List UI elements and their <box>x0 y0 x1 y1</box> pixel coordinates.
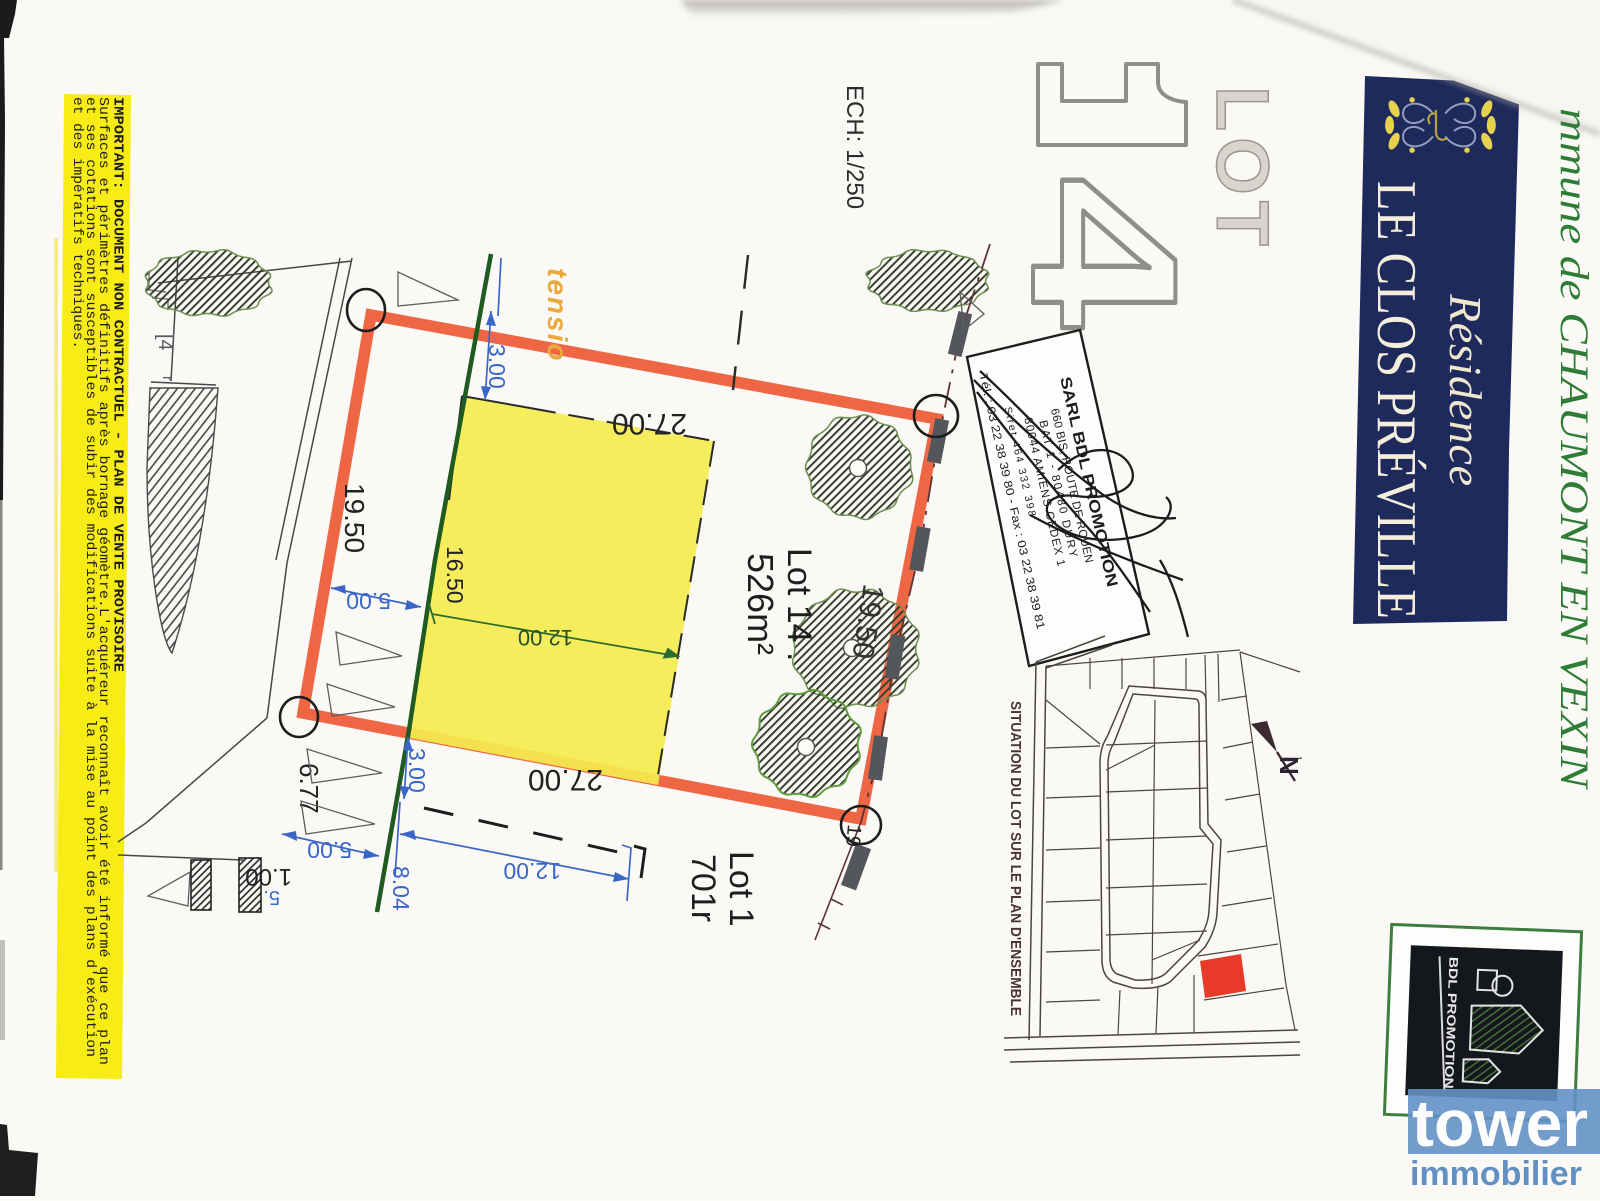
svg-text:immobilier: immobilier <box>1410 1155 1582 1193</box>
svg-text:526m²: 526m² <box>740 553 781 655</box>
svg-text:Lot 14 .: Lot 14 . <box>780 548 818 661</box>
svg-text:5.00: 5.00 <box>307 837 352 863</box>
svg-text:27.00: 27.00 <box>612 407 687 440</box>
svg-text:19: 19 <box>841 824 865 848</box>
svg-text:LE CLOS PRÉVILLE: LE CLOS PRÉVILLE <box>1365 181 1427 619</box>
svg-text:r: r <box>160 376 176 381</box>
svg-text:27.00: 27.00 <box>528 763 603 796</box>
svg-text:IMPORTANT: DOCUMENT NON CONTRA: IMPORTANT: DOCUMENT NON CONTRACTUEL - PL… <box>110 97 125 672</box>
svg-text:Lot 1: Lot 1 <box>722 851 760 927</box>
svg-text:tensio: tensio <box>542 268 573 362</box>
svg-text:16.50: 16.50 <box>442 546 468 604</box>
svg-text:LOT: LOT <box>1201 86 1284 252</box>
svg-text:19.50: 19.50 <box>339 483 370 553</box>
svg-text:4: 4 <box>989 176 1220 329</box>
svg-text:3.00: 3.00 <box>404 748 430 793</box>
svg-text:5.00: 5.00 <box>346 588 391 614</box>
svg-text:mmune de CHAUMONT EN VEXIN: mmune de CHAUMONT EN VEXIN <box>1552 108 1597 791</box>
svg-text:6.77: 6.77 <box>294 763 324 814</box>
svg-text:5.: 5. <box>263 886 280 908</box>
svg-text:3.00: 3.00 <box>484 344 510 389</box>
svg-text:tower: tower <box>1412 1086 1588 1160</box>
svg-text:et des impératifs techniques.: et des impératifs techniques. <box>69 97 84 349</box>
svg-text:8.04: 8.04 <box>388 866 414 911</box>
svg-text:ECH: 1/250: ECH: 1/250 <box>841 85 868 209</box>
svg-text:12.00: 12.00 <box>503 858 561 884</box>
svg-text:12.00: 12.00 <box>518 625 573 650</box>
svg-text:SITUATION DU LOT SUR LE PLAN D: SITUATION DU LOT SUR LE PLAN D'ENSEMBLE <box>1007 701 1023 1016</box>
svg-text:N: N <box>1274 756 1304 775</box>
svg-text:[4: [4 <box>154 334 176 351</box>
svg-text:Résidence: Résidence <box>1440 293 1491 486</box>
svg-text:701r: 701r <box>684 854 722 922</box>
